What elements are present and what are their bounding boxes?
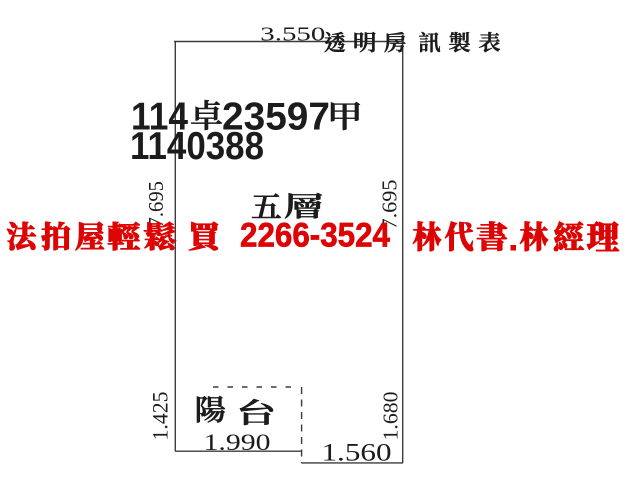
svg-text:1.990: 1.990 [204, 430, 271, 456]
svg-text:7.695: 7.695 [144, 181, 168, 228]
svg-text:3.550: 3.550 [260, 24, 325, 46]
svg-text:1140388: 1140388 [130, 125, 264, 168]
svg-text:1.425: 1.425 [148, 392, 173, 441]
svg-text:1.560: 1.560 [322, 438, 392, 467]
svg-text:1.680: 1.680 [379, 392, 403, 441]
svg-text:2266-3524: 2266-3524 [240, 216, 390, 254]
